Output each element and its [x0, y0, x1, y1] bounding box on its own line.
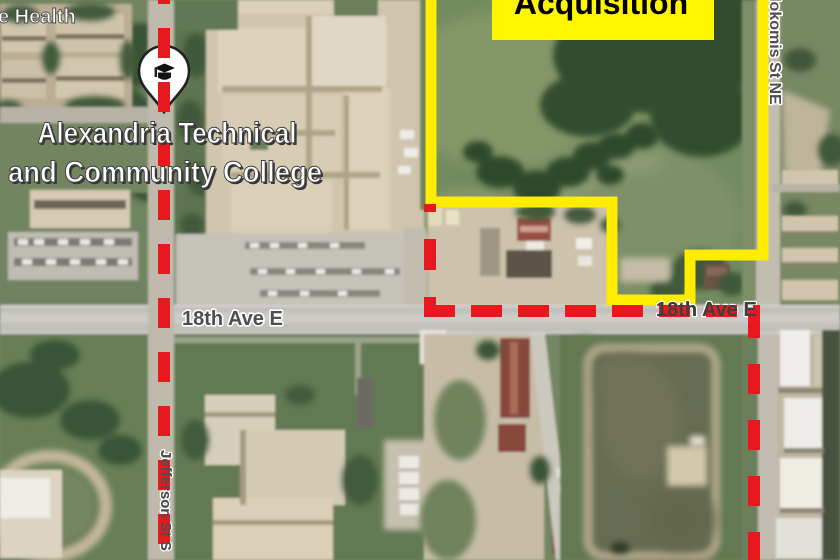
- svg-text:Nokomis St NE: Nokomis St NE: [766, 0, 783, 105]
- svg-text:and Community College: and Community College: [8, 156, 322, 189]
- svg-text:Alexandria Technical: Alexandria Technical: [38, 117, 297, 150]
- svg-text:18th Ave E: 18th Ave E: [182, 308, 283, 330]
- svg-text:Jefferson St S: Jefferson St S: [157, 450, 174, 551]
- svg-text:Acquisition: Acquisition: [514, 0, 688, 21]
- svg-text:e Health: e Health: [0, 6, 76, 28]
- svg-text:18th Ave E: 18th Ave E: [656, 299, 757, 321]
